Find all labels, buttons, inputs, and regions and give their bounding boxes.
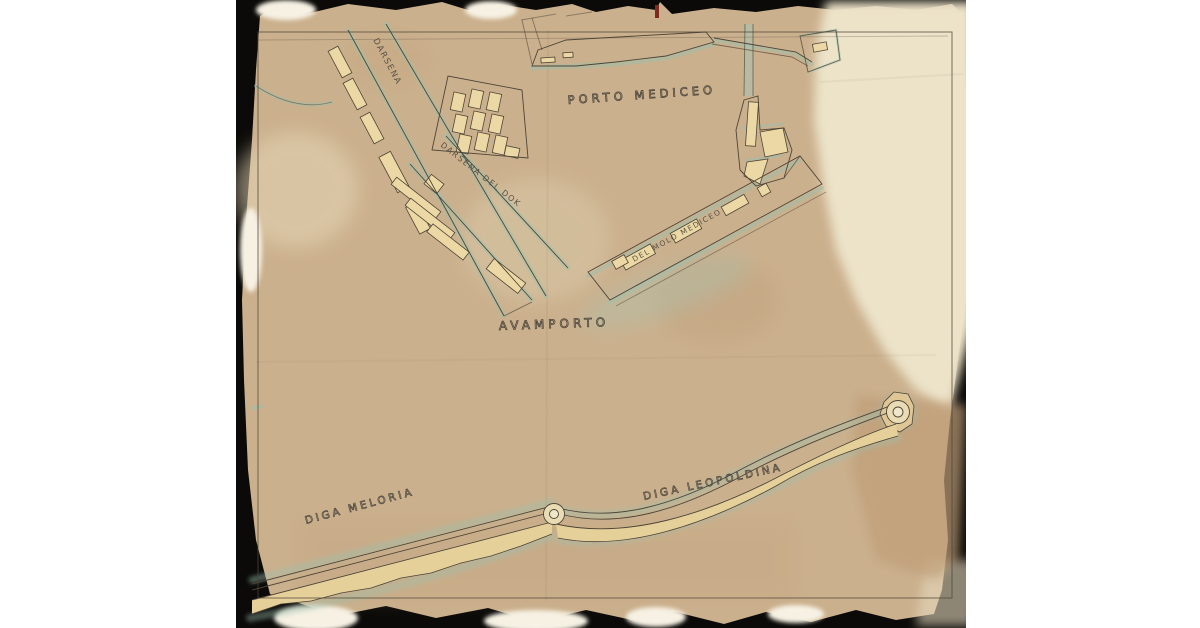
map-svg: PORTO MEDICEO AVAMPORTO DARSENA DARSENA … [236,0,966,628]
red-mark [655,5,659,18]
scanned-map: PORTO MEDICEO AVAMPORTO DARSENA DARSENA … [236,0,966,628]
